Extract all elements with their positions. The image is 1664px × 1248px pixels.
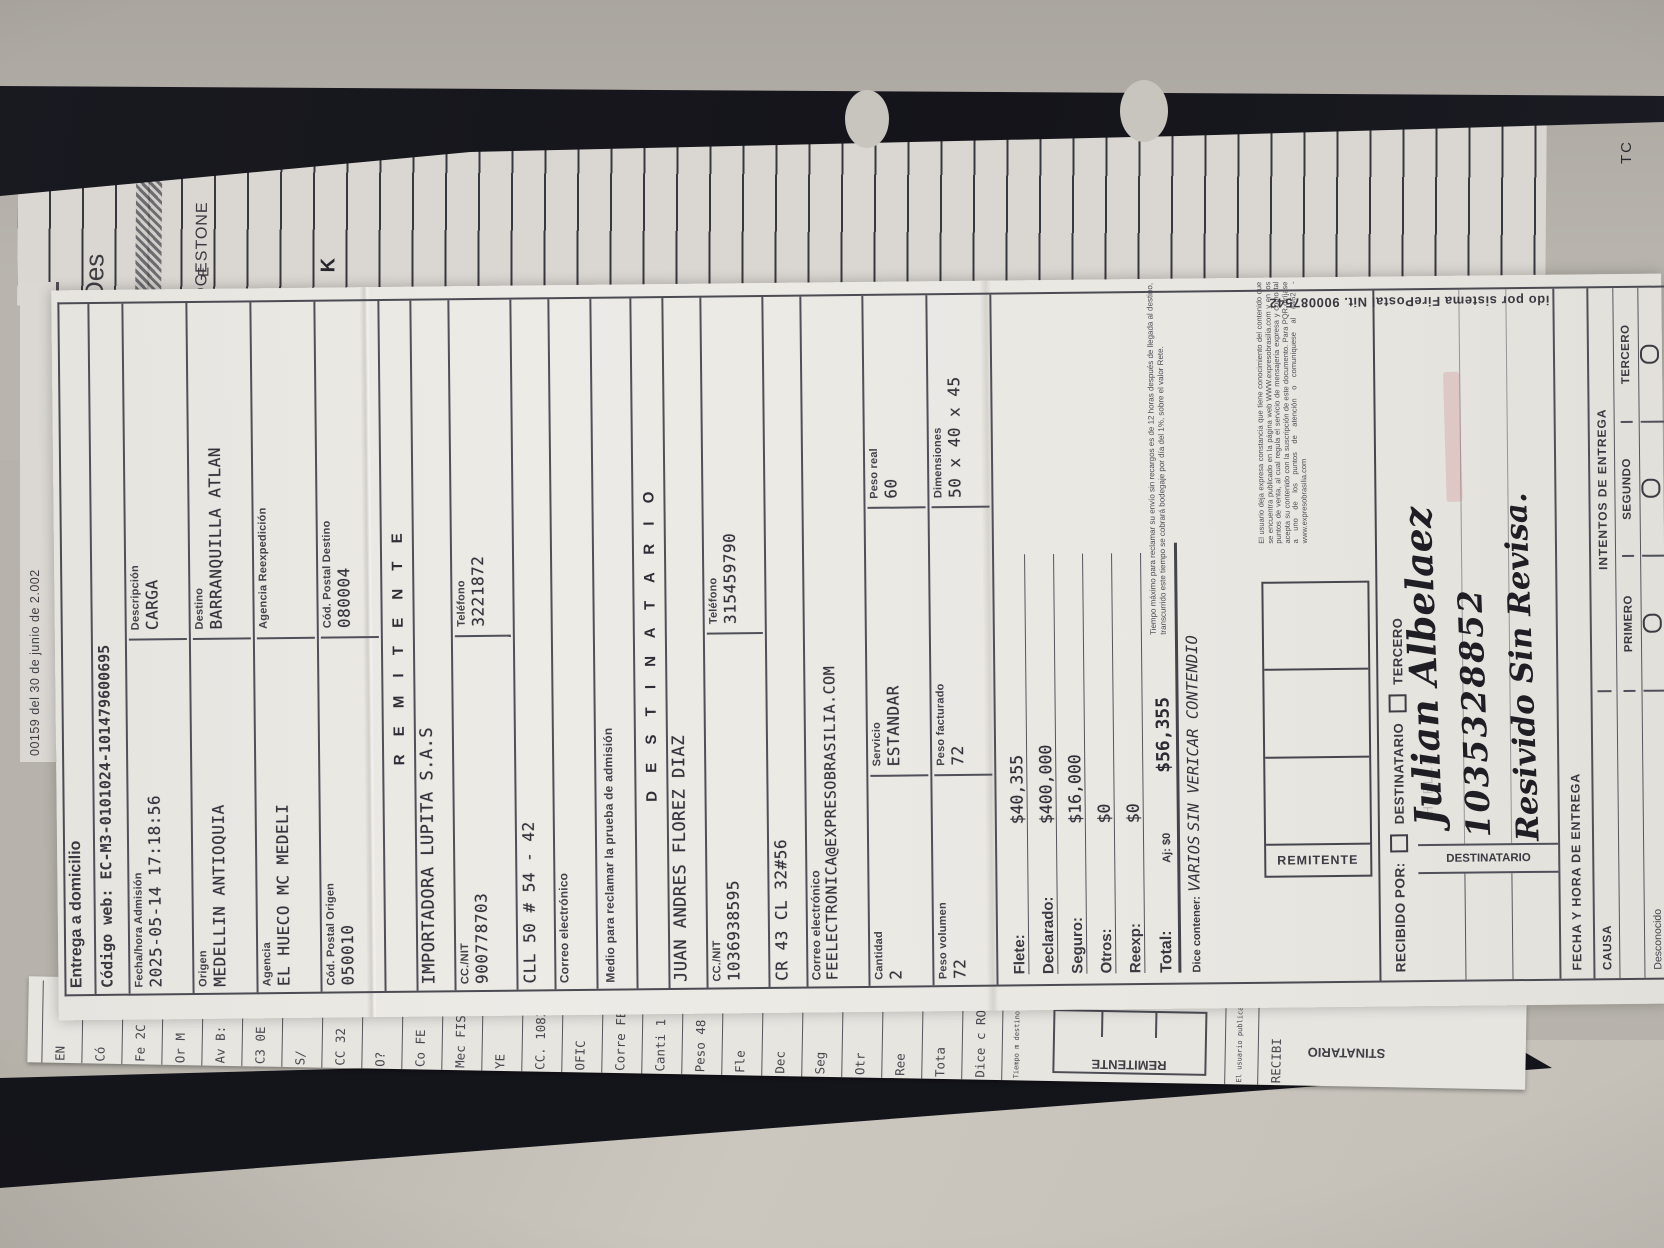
otros-row: Otros: $0	[1083, 553, 1116, 973]
intento-cell	[1640, 422, 1664, 557]
under-sheet-fragment: El usuario publicado regula serv de este…	[1224, 1002, 1258, 1085]
destino-value: BARRANQUILLA ATLAN	[203, 309, 225, 630]
signature-cell	[1418, 874, 1466, 980]
dimensiones-value: 50 x 40 x 45	[943, 301, 964, 498]
admision-cell: Fecha/hora Admisión 2025-05-14 17:18:56	[129, 640, 191, 988]
cod-postal-destino-cell: Cód. Postal Destino 080004	[317, 307, 378, 638]
descripcion-value: CARGA	[139, 309, 161, 630]
total-value: $56,355	[1153, 697, 1175, 773]
signature-cell	[1263, 583, 1368, 669]
destinatario-box-label-strip: DESTINATARIO	[1418, 843, 1558, 872]
reexp-row: Reexp: $0	[1112, 553, 1145, 973]
under-sheet-fragment: RECIBI	[1257, 1003, 1298, 1086]
seguro-value: $16,000	[1065, 754, 1085, 824]
otros-value: $0	[1095, 803, 1114, 823]
peso-real-value: 60	[879, 302, 900, 499]
remitente-ccnit-cell: CC./NIT 900778703	[455, 636, 515, 984]
agencia-reexp-label: Agencia Reexpedición	[254, 308, 270, 629]
mark-circle	[1639, 344, 1658, 363]
intentos-header: INTENTOS DE ENTREGA	[1593, 288, 1611, 692]
otros-label: Otros:	[1097, 823, 1116, 973]
flete-row: Flete: $40,355	[996, 554, 1029, 974]
handwriting-area: HUELLA Julian Albelaez 1035328852 Resivi…	[1412, 289, 1558, 844]
intento-cell	[1639, 288, 1664, 423]
waybill-form: Entrega a domicilio Código web: EC-M3-01…	[57, 286, 1664, 997]
signature-cell	[1264, 668, 1369, 756]
origen-cell: Origen MEDELLIN ANTIOQUIA	[193, 639, 255, 987]
punch-hole	[845, 90, 889, 148]
under-sheet-fragment: STINATARIO	[1308, 1045, 1386, 1061]
handwritten-id-number: 1035328852	[1450, 587, 1498, 838]
destinatario-ccnit-tel-row: CC./NIT 1036938595 Teléfono 315459790	[701, 297, 770, 988]
dice-contener-label: Dice contener:	[1191, 896, 1204, 973]
intento-cell	[1642, 557, 1664, 692]
servicio-value: ESTANDAR	[882, 509, 904, 767]
punch-hole	[1120, 80, 1168, 142]
cod-postal-row: Cód. Postal Origen 050010 Cód. Postal De…	[315, 301, 386, 992]
agencia-reexp-cell: Agencia Reexpedición	[253, 308, 314, 639]
fecha-entrega-label: FECHA Y HORA DE ENTREGA	[1568, 773, 1584, 971]
cod-postal-origen-value: 050010	[335, 638, 358, 986]
causa-name: Desconocido	[1649, 692, 1664, 978]
destinatario-correo-row: Correo electrónico FEELECTRONICA@EXPRESO…	[801, 296, 870, 987]
destinatario-nombre: JUAN ANDRES FLOREZ DIAZ	[665, 304, 691, 982]
codigo-web: Código web: EC-M3-0101024-101479600695	[95, 645, 117, 988]
destinatario-ccnit-cell: CC./NIT 1036938595	[707, 634, 767, 982]
agencia-row: Agencia EL HUECO MC MEDELI Agencia Reexp…	[251, 302, 322, 993]
causa-subheader-spacer	[1630, 692, 1633, 978]
destinatario-direccion: CR 43 CL 32#56	[765, 303, 791, 981]
seguro-row: Seguro: $16,000	[1054, 554, 1087, 974]
mark-circle	[1641, 479, 1660, 498]
flete-value: $40,355	[1007, 755, 1027, 825]
mark-circle	[1642, 614, 1661, 633]
pesos-dimensiones-row: Peso volumen 72 Peso facturado 72 Dimens…	[927, 295, 998, 986]
total-ajuste: Aj: $0	[1160, 773, 1175, 863]
declarado-label: Declarado:	[1039, 824, 1058, 974]
agencia-value: EL HUECO MC MEDELI	[271, 639, 294, 987]
admision-descripcion-row: Fecha/hora Admisión 2025-05-14 17:18:56 …	[123, 303, 194, 994]
remitente-tel-value: 3221872	[465, 306, 487, 627]
cantidad-cell: Cantidad 2	[870, 776, 930, 980]
destinatario-tel-cell: Teléfono 315459790	[703, 303, 762, 634]
peso-volumen-cell: Peso volumen 72	[934, 775, 994, 979]
descripcion-cell: Descripción CARGA	[125, 309, 186, 640]
destinatario-ccnit-value: 1036938595	[721, 634, 744, 982]
peso-real-cell: Peso real 60	[865, 301, 925, 509]
fine-print-terms: El usuario deja expresa constancia que t…	[1255, 281, 1309, 544]
total-label: Total:	[1157, 863, 1176, 973]
intentos-entrega-table: CAUSA INTENTOS DE ENTREGA PRIMEROSEGUNDO…	[1588, 287, 1664, 979]
dimensiones-cell: Dimensiones 50 x 40 x 45	[929, 301, 989, 509]
remitente-ccnit-value: 900778703	[469, 637, 492, 985]
intento-column-header: SEGUNDO	[1621, 423, 1634, 558]
seguro-label: Seguro:	[1068, 824, 1087, 974]
intento-column-header: TERCERO	[1619, 288, 1632, 423]
cod-postal-destino-value: 080004	[331, 307, 353, 628]
ledger-date-line: 00159 del 30 de junio de 2.002	[28, 290, 42, 756]
handwritten-note: Resivido Sin Revisa.	[1498, 492, 1547, 842]
signature-cell	[1265, 755, 1370, 843]
cantidad-servicio-peso-row: Cantidad 2 Servicio ESTANDAR Peso real 6…	[863, 295, 934, 986]
remitente-direccion: CLL 50 # 54 - 42	[513, 305, 539, 983]
cantidad-value: 2	[884, 776, 905, 980]
checkbox-destinatario	[1390, 834, 1408, 852]
servicio-cell: Servicio ESTANDAR	[868, 508, 929, 776]
flete-label: Flete:	[1010, 824, 1029, 974]
peso-facturado-value: 72	[946, 508, 968, 766]
declarado-value: $400,000	[1036, 744, 1056, 824]
reexp-label: Reexp:	[1126, 823, 1145, 973]
medio-reclamo-label: Medio para reclamar la prueba de admisió…	[593, 305, 617, 983]
remitente-box-label-strip: REMITENTE	[1266, 843, 1370, 876]
remitente-signature-box: REMITENTE	[1261, 581, 1372, 878]
remitente-tel-cell: Teléfono 3221872	[451, 306, 510, 637]
recibido-por-label: RECIBIDO POR:	[1392, 862, 1408, 972]
reexp-value: $0	[1124, 803, 1143, 823]
declarado-row: Declarado: $400,000	[1025, 554, 1058, 974]
intento-column-header: PRIMERO	[1622, 557, 1635, 692]
destinatario-tel-value: 315459790	[717, 303, 739, 624]
peso-volumen-value: 72	[948, 775, 969, 979]
remitente-correo-row: Correo electrónico	[549, 299, 598, 989]
origen-value: MEDELLIN ANTIOQUIA	[207, 639, 230, 987]
ledger-text-des: Des	[79, 180, 111, 300]
causa-header: CAUSA	[1598, 692, 1615, 978]
dice-contener-block: Dice contener: VARIOS SIN VERICAR CONTEN…	[1174, 292, 1257, 983]
money-table: Flete: $40,355 Declarado: $400,000 Segur…	[991, 293, 1145, 985]
dice-contener-line1: VARIOS	[1185, 836, 1204, 892]
admision-value: 2025-05-14 17:18:56	[143, 640, 166, 988]
fine-print-storage: Tiempo máximo para reclamar su envío sin…	[1145, 283, 1168, 635]
waybill-receipt: Entrega a domicilio Código web: EC-M3-01…	[51, 274, 1664, 1021]
form-title: Entrega a domicilio	[67, 841, 86, 989]
signature-cell	[1465, 873, 1513, 979]
remitente-nombre: IMPORTADORA LUPITA S.A.S	[413, 306, 439, 984]
destinatario-box-label: DESTINATARIO	[1446, 852, 1531, 865]
destinatario-signature-box: DESTINATARIO HUELLA Julian Albelaez 1035…	[1412, 289, 1561, 980]
signature-spacer-cells	[1418, 871, 1559, 980]
under-sheet-remitente-box: REMITENTE	[1052, 1009, 1207, 1076]
photo-of-waybill: Des DGESTONE E K TC 00159 del 30 de juni…	[0, 0, 1664, 1248]
remitente-ccnit-tel-row: CC./NIT 900778703 Teléfono 3221872	[449, 300, 518, 991]
dice-contener-line2: SIN VERICAR CONTENDIO	[1183, 635, 1203, 831]
origen-destino-row: Origen MEDELLIN ANTIOQUIA Destino BARRAN…	[187, 302, 258, 993]
peso-facturado-cell: Peso facturado 72	[932, 508, 993, 776]
cod-postal-origen-cell: Cód. Postal Origen 050010	[321, 638, 383, 986]
remitente-box-label: REMITENTE	[1278, 853, 1359, 868]
ledger-k-mark: K	[317, 258, 340, 273]
agencia-cell: Agencia EL HUECO MC MEDELI	[257, 638, 319, 986]
under-sheet-fragment: Tiempo m destino, tr	[1001, 998, 1035, 1081]
destino-cell: Destino BARRANQUILLA ATLAN	[189, 308, 250, 639]
ledger-brand-extra: E	[195, 267, 212, 277]
